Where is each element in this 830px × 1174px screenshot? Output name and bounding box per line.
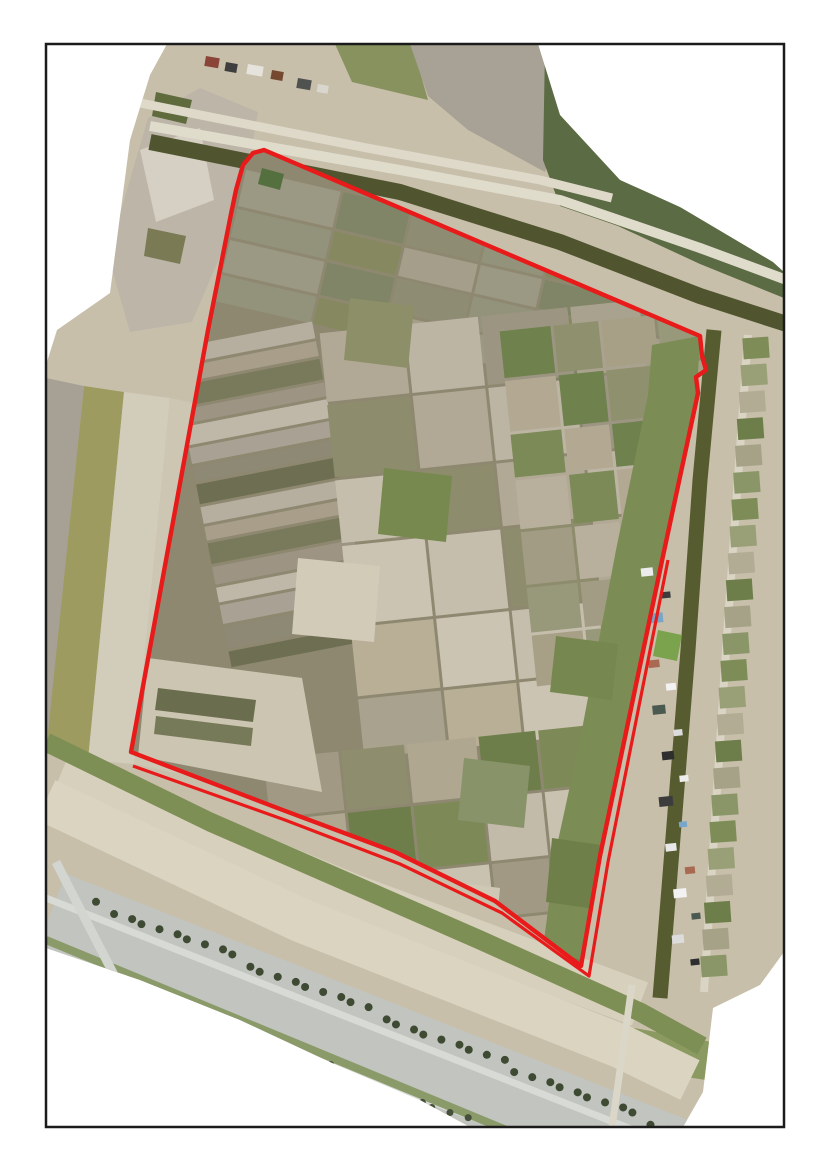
olive-pond-north [344, 298, 414, 368]
tree-row-2-tree [538, 1147, 545, 1154]
tree-row-1-tree [510, 1068, 518, 1076]
tree-row-1-tree [128, 915, 136, 923]
pond-parcel [505, 376, 561, 432]
green-pond-center [378, 468, 452, 542]
tree-row-2-tree [520, 1142, 527, 1149]
tree-row-2-tree [511, 1137, 518, 1144]
tree-row-1-tree [710, 1141, 718, 1149]
tree-row-1-tree [274, 973, 282, 981]
tree-row-1-tree [183, 935, 191, 943]
tree-row-1-tree [292, 978, 300, 986]
east-pond [702, 928, 729, 951]
tree-row-1-tree [110, 910, 118, 918]
east-pond [715, 740, 742, 763]
pond-parcel [436, 611, 516, 687]
village-building [648, 659, 660, 668]
east-pond [708, 847, 735, 870]
pond-parcel [559, 371, 609, 426]
tree-row-1-tree [256, 968, 264, 976]
tree-row-1-tree [556, 1083, 564, 1091]
east-pond [733, 471, 760, 494]
east-pond [722, 632, 749, 655]
tree-row-1-tree [337, 993, 345, 1001]
village-building [641, 567, 654, 577]
village-building [673, 729, 683, 736]
village-building [672, 934, 685, 944]
east-pond [742, 337, 769, 360]
east-pond [711, 793, 738, 816]
pond-parcel [601, 315, 659, 367]
tree-row-1-tree [419, 1031, 427, 1039]
tree-row-1-tree [437, 1036, 445, 1044]
tree-row-1-tree [246, 963, 254, 971]
pale-pond-west [292, 558, 380, 642]
village-building [679, 775, 689, 782]
tree-row-2-tree [566, 1157, 573, 1164]
tree-row-1-tree [392, 1020, 400, 1028]
east-pond [735, 444, 762, 467]
green-pond-east [550, 636, 618, 700]
tree-row-1-tree [174, 930, 182, 938]
overlay-details [653, 630, 682, 661]
pond-parcel [515, 475, 571, 529]
tree-row-1-tree [228, 950, 236, 958]
pond-parcel [564, 424, 613, 471]
pond-parcel [527, 583, 582, 633]
village-building [662, 751, 675, 761]
pond-parcel [428, 530, 509, 616]
pond-parcel [553, 321, 603, 372]
tree-row-1-tree [347, 998, 355, 1006]
east-pond [720, 659, 747, 682]
pond-parcel [500, 326, 556, 378]
tree-row-2-tree [465, 1114, 472, 1121]
east-pond [719, 686, 746, 709]
village-building [673, 888, 687, 898]
east-pond [700, 955, 727, 978]
village-building [666, 683, 677, 691]
east-pond [713, 767, 740, 790]
tree-row-1-tree [201, 940, 209, 948]
page [0, 0, 830, 1174]
tree-row-1-tree [628, 1109, 636, 1117]
tree-row-1-tree [319, 988, 327, 996]
east-pond [740, 363, 767, 386]
tree-row-1-tree [692, 1136, 700, 1144]
village-building [679, 821, 688, 827]
pond-parcel [521, 527, 577, 585]
tree-row-1-tree [546, 1078, 554, 1086]
east-pond [717, 713, 744, 736]
orthophoto-map-figure [0, 0, 830, 1174]
tree-row-1-tree [674, 1131, 682, 1139]
east-pond [709, 820, 736, 843]
pond-parcel [327, 396, 417, 477]
east-pond [704, 901, 731, 924]
village-building [665, 843, 677, 852]
tree-row-1-tree [501, 1056, 509, 1064]
tree-row-1-tree [455, 1041, 463, 1049]
east-pond [730, 525, 757, 548]
pond-parcel [511, 429, 566, 477]
village-building [691, 913, 701, 920]
pond-parcel [569, 470, 619, 523]
tree-row-1-tree [583, 1093, 591, 1101]
pond-parcel [413, 388, 493, 468]
tree-row-1-tree [574, 1088, 582, 1096]
village-building [690, 958, 700, 965]
village-building [659, 796, 674, 807]
tree-row-1-tree [219, 945, 227, 953]
east-pond [739, 390, 766, 413]
east-pond [724, 605, 751, 628]
tree-row-1-tree [483, 1051, 491, 1059]
tree-row-1-tree [410, 1026, 418, 1034]
east-pond [728, 552, 755, 575]
tree-row-1-tree [156, 925, 164, 933]
tree-row-1-tree [465, 1046, 473, 1054]
tree-row-1-tree [137, 920, 145, 928]
east-pond [706, 874, 733, 897]
tree-row-1-tree [528, 1073, 536, 1081]
east-pond [726, 578, 753, 601]
tree-row-1-tree [383, 1015, 391, 1023]
bright-green-pond-village [653, 630, 682, 661]
east-pond [737, 417, 764, 440]
tree-row-1-tree [601, 1098, 609, 1106]
pond-parcel [405, 317, 485, 393]
tree-row-2-tree [492, 1131, 499, 1138]
village-building [685, 866, 696, 874]
east-pond [731, 498, 758, 521]
tree-row-1-tree [619, 1103, 627, 1111]
tree-row-1-tree [301, 983, 309, 991]
tree-row-1-tree [365, 1003, 373, 1011]
tree-row-2-tree [548, 1152, 555, 1159]
tree-row-1-tree [92, 898, 100, 906]
olive-pond-south [458, 758, 530, 828]
village-building [652, 704, 666, 714]
pond-parcel [341, 745, 410, 810]
